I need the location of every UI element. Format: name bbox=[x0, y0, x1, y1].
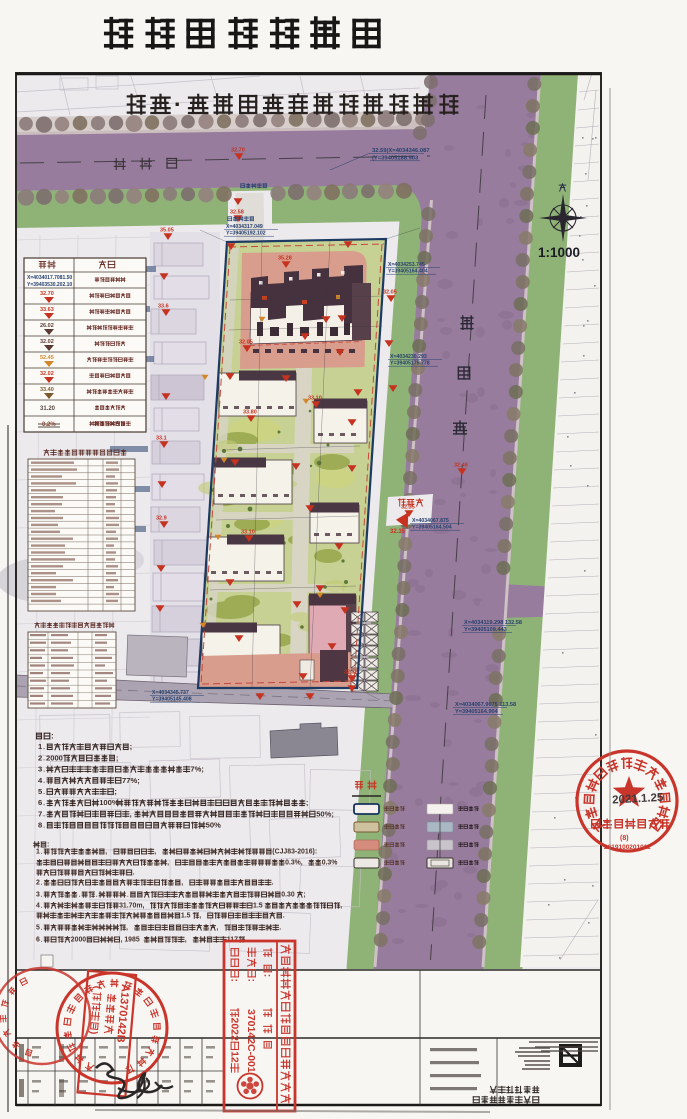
svg-text:Y=39403530.202.10: Y=39403530.202.10 bbox=[27, 282, 72, 288]
svg-text:26.02: 26.02 bbox=[40, 323, 54, 329]
svg-text::: : bbox=[51, 732, 54, 741]
svg-text:,: , bbox=[216, 925, 218, 932]
svg-text:1.5: 1.5 bbox=[181, 913, 191, 920]
svg-text:7%;: 7%; bbox=[190, 765, 204, 774]
svg-text:31.20: 31.20 bbox=[40, 406, 56, 412]
svg-text:(8): (8) bbox=[620, 835, 629, 842]
svg-text:0.2%: 0.2% bbox=[42, 422, 56, 428]
svg-text:370142C-001: 370142C-001 bbox=[245, 1009, 257, 1073]
svg-text:2000: 2000 bbox=[46, 753, 63, 762]
svg-text:X=4034345.737: X=4034345.737 bbox=[152, 690, 189, 696]
svg-text:32.05: 32.05 bbox=[239, 339, 253, 345]
svg-text::: : bbox=[245, 979, 257, 983]
svg-text:.: . bbox=[279, 925, 281, 932]
svg-text:1.5: 1.5 bbox=[253, 903, 263, 910]
svg-text:100%: 100% bbox=[99, 798, 119, 807]
svg-text:.: . bbox=[272, 880, 274, 887]
svg-text:6: 6 bbox=[36, 937, 40, 944]
svg-text:,: , bbox=[181, 880, 183, 887]
svg-text:8: 8 bbox=[38, 821, 42, 830]
svg-text:32.59(X=4034346.087: 32.59(X=4034346.087 bbox=[372, 148, 430, 154]
svg-text:;: ; bbox=[130, 742, 133, 751]
svg-text:5: 5 bbox=[36, 925, 40, 932]
svg-text:,: , bbox=[126, 925, 128, 932]
svg-text:,: , bbox=[199, 913, 201, 920]
svg-text:0.3%,: 0.3%, bbox=[285, 860, 303, 867]
svg-text:33.10: 33.10 bbox=[308, 395, 322, 401]
svg-text:2019100201011: 2019100201011 bbox=[604, 844, 651, 851]
svg-text:32.70: 32.70 bbox=[231, 147, 245, 153]
svg-text:·: · bbox=[174, 91, 182, 117]
svg-text:,: , bbox=[154, 849, 156, 856]
svg-text:(CJJ83-2016):: (CJJ83-2016): bbox=[272, 849, 317, 856]
svg-text:3: 3 bbox=[36, 892, 40, 899]
svg-text:77%;: 77%; bbox=[122, 776, 140, 785]
svg-text:32.58: 32.58 bbox=[230, 209, 244, 215]
svg-text::: : bbox=[47, 842, 49, 849]
svg-text:.: . bbox=[133, 870, 135, 877]
svg-text:Y=39405109.443: Y=39405109.443 bbox=[464, 627, 507, 633]
svg-text:X=4034067.9075 113.58: X=4034067.9075 113.58 bbox=[455, 702, 516, 708]
svg-text:33.80: 33.80 bbox=[243, 409, 257, 415]
svg-text:1:1000: 1:1000 bbox=[538, 245, 580, 260]
svg-text:X=4034253.745: X=4034253.745 bbox=[388, 262, 425, 268]
svg-text:35.28: 35.28 bbox=[278, 255, 292, 261]
svg-text:33.6: 33.6 bbox=[158, 303, 169, 309]
svg-text:6: 6 bbox=[38, 798, 42, 807]
svg-text:4: 4 bbox=[36, 903, 40, 910]
svg-text:X=4034067.875: X=4034067.875 bbox=[412, 518, 449, 524]
svg-text:,: , bbox=[340, 903, 342, 910]
svg-text::: : bbox=[228, 979, 240, 983]
svg-text:2022: 2022 bbox=[228, 1018, 240, 1042]
svg-text:2000: 2000 bbox=[71, 937, 86, 944]
svg-text:32.35: 32.35 bbox=[390, 529, 406, 535]
svg-text:32.48: 32.48 bbox=[454, 462, 468, 468]
svg-text:2: 2 bbox=[36, 880, 40, 887]
svg-text:Y=39405164.504: Y=39405164.504 bbox=[412, 525, 452, 531]
svg-text:Y=39405175.778: Y=39405175.778 bbox=[390, 361, 430, 367]
svg-text:52.45: 52.45 bbox=[40, 355, 54, 361]
svg-text:,: , bbox=[130, 809, 132, 818]
svg-text:33.1: 33.1 bbox=[156, 435, 167, 441]
svg-text:Y=39405164.404: Y=39405164.404 bbox=[388, 269, 428, 275]
svg-text:Y=39405192.102: Y=39405192.102 bbox=[226, 231, 266, 237]
svg-text:32.9: 32.9 bbox=[156, 515, 167, 521]
svg-text::: : bbox=[261, 974, 273, 978]
svg-text:X=4034317.049: X=4034317.049 bbox=[226, 224, 263, 230]
svg-text:, 1985: , 1985 bbox=[121, 937, 140, 944]
svg-text:;: ; bbox=[114, 787, 117, 796]
svg-text:X=4034119.298 132.58: X=4034119.298 132.58 bbox=[464, 620, 522, 626]
svg-text:;: ; bbox=[116, 753, 119, 762]
svg-text:,: , bbox=[167, 860, 169, 867]
svg-text:33.40: 33.40 bbox=[40, 387, 54, 393]
svg-text:32.05: 32.05 bbox=[383, 289, 397, 295]
svg-text:;: ; bbox=[306, 798, 309, 807]
svg-text:3: 3 bbox=[38, 765, 42, 774]
svg-text:,: , bbox=[105, 849, 107, 856]
svg-text:,: , bbox=[185, 937, 187, 944]
svg-text:32.38: 32.38 bbox=[344, 669, 358, 675]
svg-text:33.10: 33.10 bbox=[241, 529, 255, 535]
svg-text:50%;: 50%; bbox=[316, 809, 334, 818]
svg-text:12: 12 bbox=[228, 1051, 240, 1063]
svg-text:0.30: 0.30 bbox=[281, 892, 295, 899]
svg-text:;: ; bbox=[303, 892, 305, 899]
svg-text:Y=39405164.904: Y=39405164.904 bbox=[455, 709, 499, 715]
svg-text:.: . bbox=[283, 913, 285, 920]
svg-text:32.02: 32.02 bbox=[40, 371, 54, 377]
svg-text:32.70: 32.70 bbox=[40, 291, 54, 297]
svg-text:0.3%: 0.3% bbox=[322, 860, 338, 867]
svg-text:(Y=39405188.903: (Y=39405188.903 bbox=[372, 155, 419, 161]
svg-text:31.70m,: 31.70m, bbox=[119, 903, 144, 910]
svg-text:50%: 50% bbox=[206, 821, 221, 830]
svg-text:35.05: 35.05 bbox=[160, 227, 174, 233]
svg-text:2: 2 bbox=[38, 753, 42, 762]
svg-text:X=4034017.7081.50: X=4034017.7081.50 bbox=[27, 275, 72, 281]
svg-text:33.63: 33.63 bbox=[40, 307, 54, 313]
svg-text:7: 7 bbox=[38, 809, 42, 818]
svg-text:32.02: 32.02 bbox=[40, 339, 54, 345]
svg-text:Y=39405145.408: Y=39405145.408 bbox=[152, 697, 192, 703]
svg-text:X=4034230.293: X=4034230.293 bbox=[390, 354, 427, 360]
svg-text:1: 1 bbox=[36, 849, 40, 856]
